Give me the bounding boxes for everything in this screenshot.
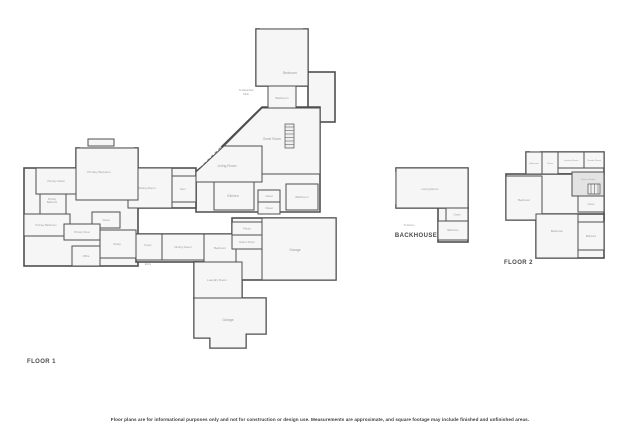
closet-label: Closet bbox=[547, 162, 554, 165]
bathroom-label: Bathroom bbox=[447, 228, 458, 232]
closet-label: Closet bbox=[588, 203, 595, 206]
powder-room-label: Powder Room bbox=[587, 159, 601, 162]
bedroom-label: Bedroom bbox=[551, 229, 564, 233]
dining-room-label: Dining Room bbox=[174, 245, 192, 249]
primary-closet-label: Primary Closet bbox=[47, 179, 64, 183]
plan-note: Entry bbox=[145, 262, 152, 266]
garage-label: Garage bbox=[289, 248, 300, 252]
primary-bathroom-label: PrimaryBathroom bbox=[47, 198, 57, 204]
floor-2-title: FLOOR 2 bbox=[504, 260, 533, 266]
den-label: Den bbox=[180, 187, 186, 191]
office-label: Office bbox=[83, 254, 90, 258]
primary-closet-label: Primary Closet bbox=[74, 231, 90, 234]
laundry-room-label: Laundry Room bbox=[207, 278, 227, 282]
bedroom-label: Bedroom bbox=[518, 198, 531, 202]
living-room-label: Living Room bbox=[422, 187, 439, 191]
backhouse-title: BACKHOUSE bbox=[386, 233, 446, 239]
living-room-label: Living Room bbox=[218, 164, 237, 168]
closet-label: Closet bbox=[265, 206, 273, 210]
floor-plan-svg: BedroomBathroomGreat RoomLiving RoomKitc… bbox=[0, 0, 640, 426]
backhouse: Living RoomClosetBathroomTo Atrium bbox=[396, 168, 468, 242]
kitchen-label: Kitchen bbox=[227, 194, 238, 198]
porch-detail-room bbox=[88, 139, 114, 146]
butlers-pantry-label: Butler's Pantry bbox=[239, 241, 255, 244]
plan-note: Patio bbox=[243, 92, 249, 96]
bedroom-label: Bedroom bbox=[283, 71, 297, 75]
bathroom-label: Bathroom bbox=[295, 195, 309, 199]
garage-label: Garage bbox=[222, 318, 233, 322]
floor-2: BathroomClosetLaundry RoomPowder RoomOpe… bbox=[506, 152, 604, 258]
garage-room bbox=[194, 298, 266, 348]
great-room-label: Great Room bbox=[263, 137, 282, 141]
floor-plan-image: BedroomBathroomGreat RoomLiving RoomKitc… bbox=[0, 0, 640, 426]
plan-note: To Atrium bbox=[404, 223, 415, 227]
open-to-below-label: Open to Below bbox=[581, 178, 596, 181]
study-label: Study bbox=[113, 242, 121, 246]
pantry-label: Pantry bbox=[243, 227, 251, 231]
bedroom-room bbox=[536, 214, 578, 258]
laundry-room-label: Laundry Room bbox=[564, 159, 579, 162]
closet-label: Closet bbox=[454, 214, 461, 217]
foyer-label: Foyer bbox=[144, 243, 151, 247]
primary-bedroom-label: Primary Bedroom bbox=[87, 170, 111, 174]
primary-bedroom-room bbox=[76, 148, 138, 200]
plan-note: To Detached bbox=[239, 88, 254, 92]
closet-label: Closet bbox=[102, 218, 110, 222]
disclaimer-text: Floor plans are for informational purpos… bbox=[0, 417, 640, 422]
floor-1-title: FLOOR 1 bbox=[27, 359, 56, 365]
primary-bathroom-room bbox=[40, 194, 66, 214]
bedroom-room bbox=[256, 29, 308, 86]
bathroom-label: Bathroom bbox=[275, 96, 289, 100]
closet-label: Closet bbox=[265, 194, 273, 198]
primary-bathroom-label: Primary Bathroom bbox=[36, 223, 57, 227]
bedroom-label: Bedroom bbox=[214, 246, 227, 250]
sitting-room-label: Sitting Room bbox=[138, 186, 156, 190]
floor-1: BedroomBathroomGreat RoomLiving RoomKitc… bbox=[24, 29, 336, 348]
foyer-room bbox=[136, 234, 162, 260]
bathroom-label: Bathroom bbox=[529, 162, 539, 165]
bathroom-label: Bathroom bbox=[586, 235, 596, 238]
